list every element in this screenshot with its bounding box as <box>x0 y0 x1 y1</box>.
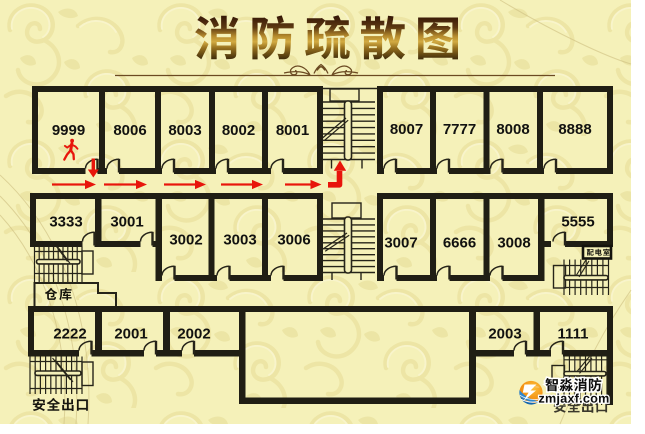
svg-text:6666: 6666 <box>443 235 476 252</box>
svg-text:9999: 9999 <box>52 122 85 139</box>
svg-text:3001: 3001 <box>110 214 143 231</box>
svg-text:3007: 3007 <box>384 235 417 252</box>
svg-text:2003: 2003 <box>488 326 521 343</box>
svg-text:3002: 3002 <box>169 232 202 249</box>
svg-text:2001: 2001 <box>114 326 147 343</box>
svg-text:3333: 3333 <box>49 214 82 231</box>
svg-text:7777: 7777 <box>443 121 476 138</box>
svg-text:8007: 8007 <box>390 121 423 138</box>
svg-text:1111: 1111 <box>558 326 589 343</box>
svg-text:8003: 8003 <box>168 122 201 139</box>
svg-text:8002: 8002 <box>222 122 255 139</box>
svg-text:3003: 3003 <box>223 232 256 249</box>
svg-text:2002: 2002 <box>177 326 210 343</box>
svg-text:8001: 8001 <box>276 122 309 139</box>
svg-text:3006: 3006 <box>277 232 310 249</box>
svg-text:8888: 8888 <box>558 121 591 138</box>
svg-text:8008: 8008 <box>496 121 529 138</box>
svg-text:3008: 3008 <box>497 235 530 252</box>
svg-text:2222: 2222 <box>53 326 86 343</box>
svg-text:5555: 5555 <box>561 214 594 231</box>
svg-text:8006: 8006 <box>113 122 146 139</box>
